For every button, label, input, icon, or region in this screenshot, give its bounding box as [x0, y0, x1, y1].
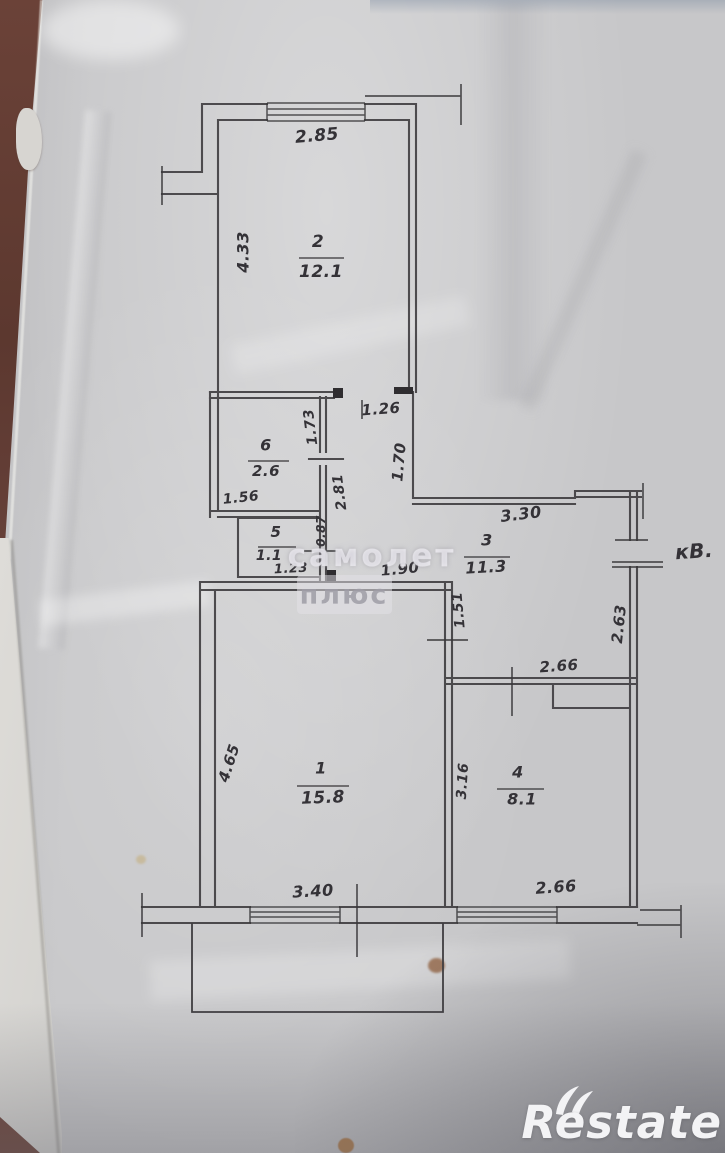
room2-area: 12.1	[299, 262, 343, 282]
room1-number: 1	[315, 759, 327, 778]
dim-room2-width: 2.85	[294, 124, 340, 148]
watermark-samolet: самолет	[288, 538, 457, 574]
walls	[142, 104, 641, 923]
dim-room2-door: 1.26	[361, 399, 401, 420]
room3-area: 11.3	[465, 556, 507, 577]
room5-area: 1.1	[256, 548, 282, 564]
room4-number: 4	[512, 763, 524, 782]
room3-number: 3	[481, 531, 493, 550]
room6-area: 2.6	[252, 462, 280, 480]
dim-room2-height: 4.33	[234, 231, 253, 272]
dim-room4-top-width: 2.66	[539, 656, 579, 677]
dim-room4-left-height: 3.16	[454, 762, 473, 800]
dimension-ticks	[142, 84, 681, 957]
room4-area: 8.1	[507, 790, 537, 809]
room5-number: 5	[271, 523, 282, 541]
room-number-underlines	[248, 258, 544, 789]
floor-plan-photo: 2.85 4.33 1.26 1.73 1.56 1.70 2.81 0.87 …	[0, 0, 725, 1153]
watermark-plus: плюс	[300, 580, 389, 611]
entrance-label: кВ.	[674, 538, 714, 565]
restate-logo: Restate	[521, 1096, 722, 1149]
room2-number: 2	[312, 232, 324, 252]
room1-area: 15.8	[301, 787, 346, 809]
dim-corridor-height: 1.70	[388, 442, 409, 482]
room6-number: 6	[260, 436, 272, 455]
photo-top-shadow	[370, 0, 725, 14]
dim-hall-left: 1.51	[449, 591, 468, 629]
